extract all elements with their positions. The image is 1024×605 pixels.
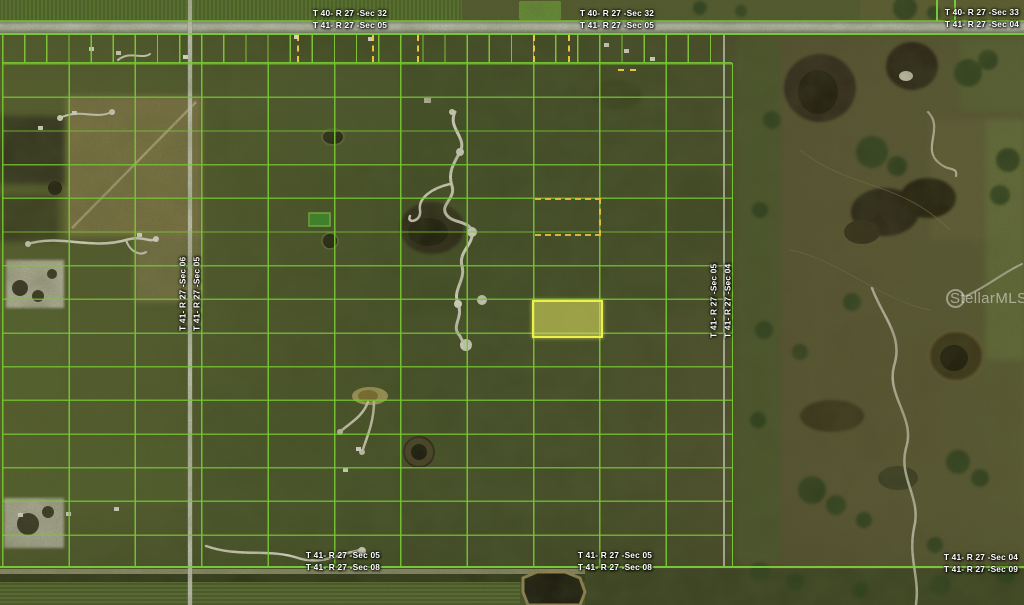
section-label-text: T 40- R 27 -Sec 32 (305, 8, 395, 20)
section-label-text: T 41- R 27 -Sec 05 (570, 550, 660, 562)
section-label-text: T 41- R 27 -Sec 04 (940, 552, 1022, 564)
section-line-northeast-a (936, 0, 938, 21)
section-label-text: T 41- R 27 -Sec 04 (942, 19, 1022, 31)
section-label-south-east: T 41- R 27 -Sec 05 T 41- R 27 -Sec 08 (570, 550, 660, 573)
dashed-marker-1 (297, 35, 299, 62)
dashed-marker-4 (533, 35, 535, 62)
parcel-grid (2, 63, 733, 568)
section-label-north-center: T 40- R 27 -Sec 32 T 41- R 27 -Sec 05 (305, 8, 395, 31)
section-label-text: T 41- R 27 -Sec 05 (305, 20, 395, 32)
aerial-parcel-map: T 40- R 27 -Sec 32 T 41- R 27 -Sec 05 T … (0, 0, 1024, 605)
section-label-text: T 41- R 27 -Sec 09 (940, 564, 1022, 576)
section-line-north-upper (0, 20, 1024, 22)
watermark: StellarMLS (944, 289, 1024, 309)
section-label-east-left: T 41- R 27 -Sec 05 (708, 251, 720, 351)
highlighted-parcel (532, 300, 603, 339)
section-label-text: T 40- R 27 -Sec 32 (572, 8, 662, 20)
section-label-east-right: T 41- R 27 -Sec 04 (722, 251, 734, 351)
parcel-grid-top-strip (2, 35, 732, 63)
section-label-text: T 41- R 27 -Sec 08 (298, 562, 388, 574)
section-label-text: T 41- R 27 -Sec 08 (570, 562, 660, 574)
dashed-marker-3 (417, 35, 419, 62)
section-label-west-left: T 41- R 27 -Sec 06 (177, 244, 189, 344)
section-label-west-right: T 41- R 27 -Sec 05 (191, 244, 203, 344)
section-label-south-far-east: T 41- R 27 -Sec 04 T 41- R 27 -Sec 09 (940, 552, 1022, 575)
dashed-marker-6 (618, 69, 636, 71)
watermark-text: StellarMLS (950, 290, 1024, 307)
section-label-south-center: T 41- R 27 -Sec 05 T 41- R 27 -Sec 08 (298, 550, 388, 573)
section-label-north-far-east: T 40- R 27 -Sec 33 T 41- R 27 -Sec 04 (942, 7, 1022, 30)
dashed-marker-2 (372, 35, 374, 62)
section-label-text: T 41- R 27 -Sec 05 (298, 550, 388, 562)
section-label-text: T 41- R 27 -Sec 05 (572, 20, 662, 32)
dashed-marker-5 (568, 35, 570, 62)
dashed-parcel-outline (535, 198, 601, 236)
section-label-north-east: T 40- R 27 -Sec 32 T 41- R 27 -Sec 05 (572, 8, 662, 31)
section-label-text: T 40- R 27 -Sec 33 (942, 7, 1022, 19)
